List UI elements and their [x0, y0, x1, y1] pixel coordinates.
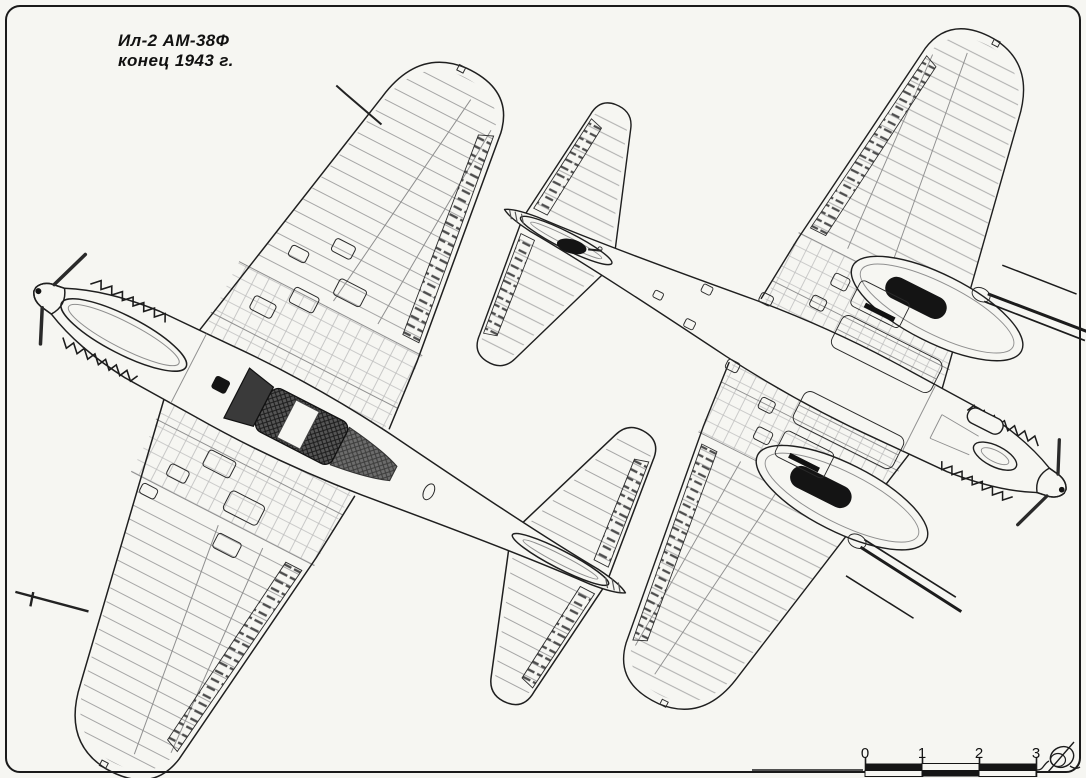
scale-segment [979, 771, 1036, 777]
artist-monogram [1037, 742, 1080, 772]
scale-segment [865, 771, 922, 777]
scale-segment [922, 764, 979, 771]
scale-segment [865, 764, 922, 771]
scale-segment [979, 764, 1036, 771]
scale-label-3: 3 [1032, 745, 1040, 762]
scale-label-2: 2 [975, 745, 983, 762]
drawing-subtitle: конец 1943 г. [118, 51, 234, 70]
prop-blade [1018, 490, 1047, 531]
drawing-title: Ил-2 АМ-38Ф [118, 31, 230, 50]
scale-label-0: 0 [861, 745, 869, 762]
prop-blade [54, 248, 85, 291]
scale-segment [922, 771, 979, 777]
blueprint-canvas: Ил-2 АМ-38Ф конец 1943 г. 0 1 2 3 [0, 0, 1086, 778]
title-block: Ил-2 АМ-38Ф конец 1943 г. [118, 31, 234, 70]
blueprint-page: Ил-2 АМ-38Ф конец 1943 г. 0 1 2 3 [0, 0, 1086, 778]
scale-label-1: 1 [918, 745, 926, 762]
